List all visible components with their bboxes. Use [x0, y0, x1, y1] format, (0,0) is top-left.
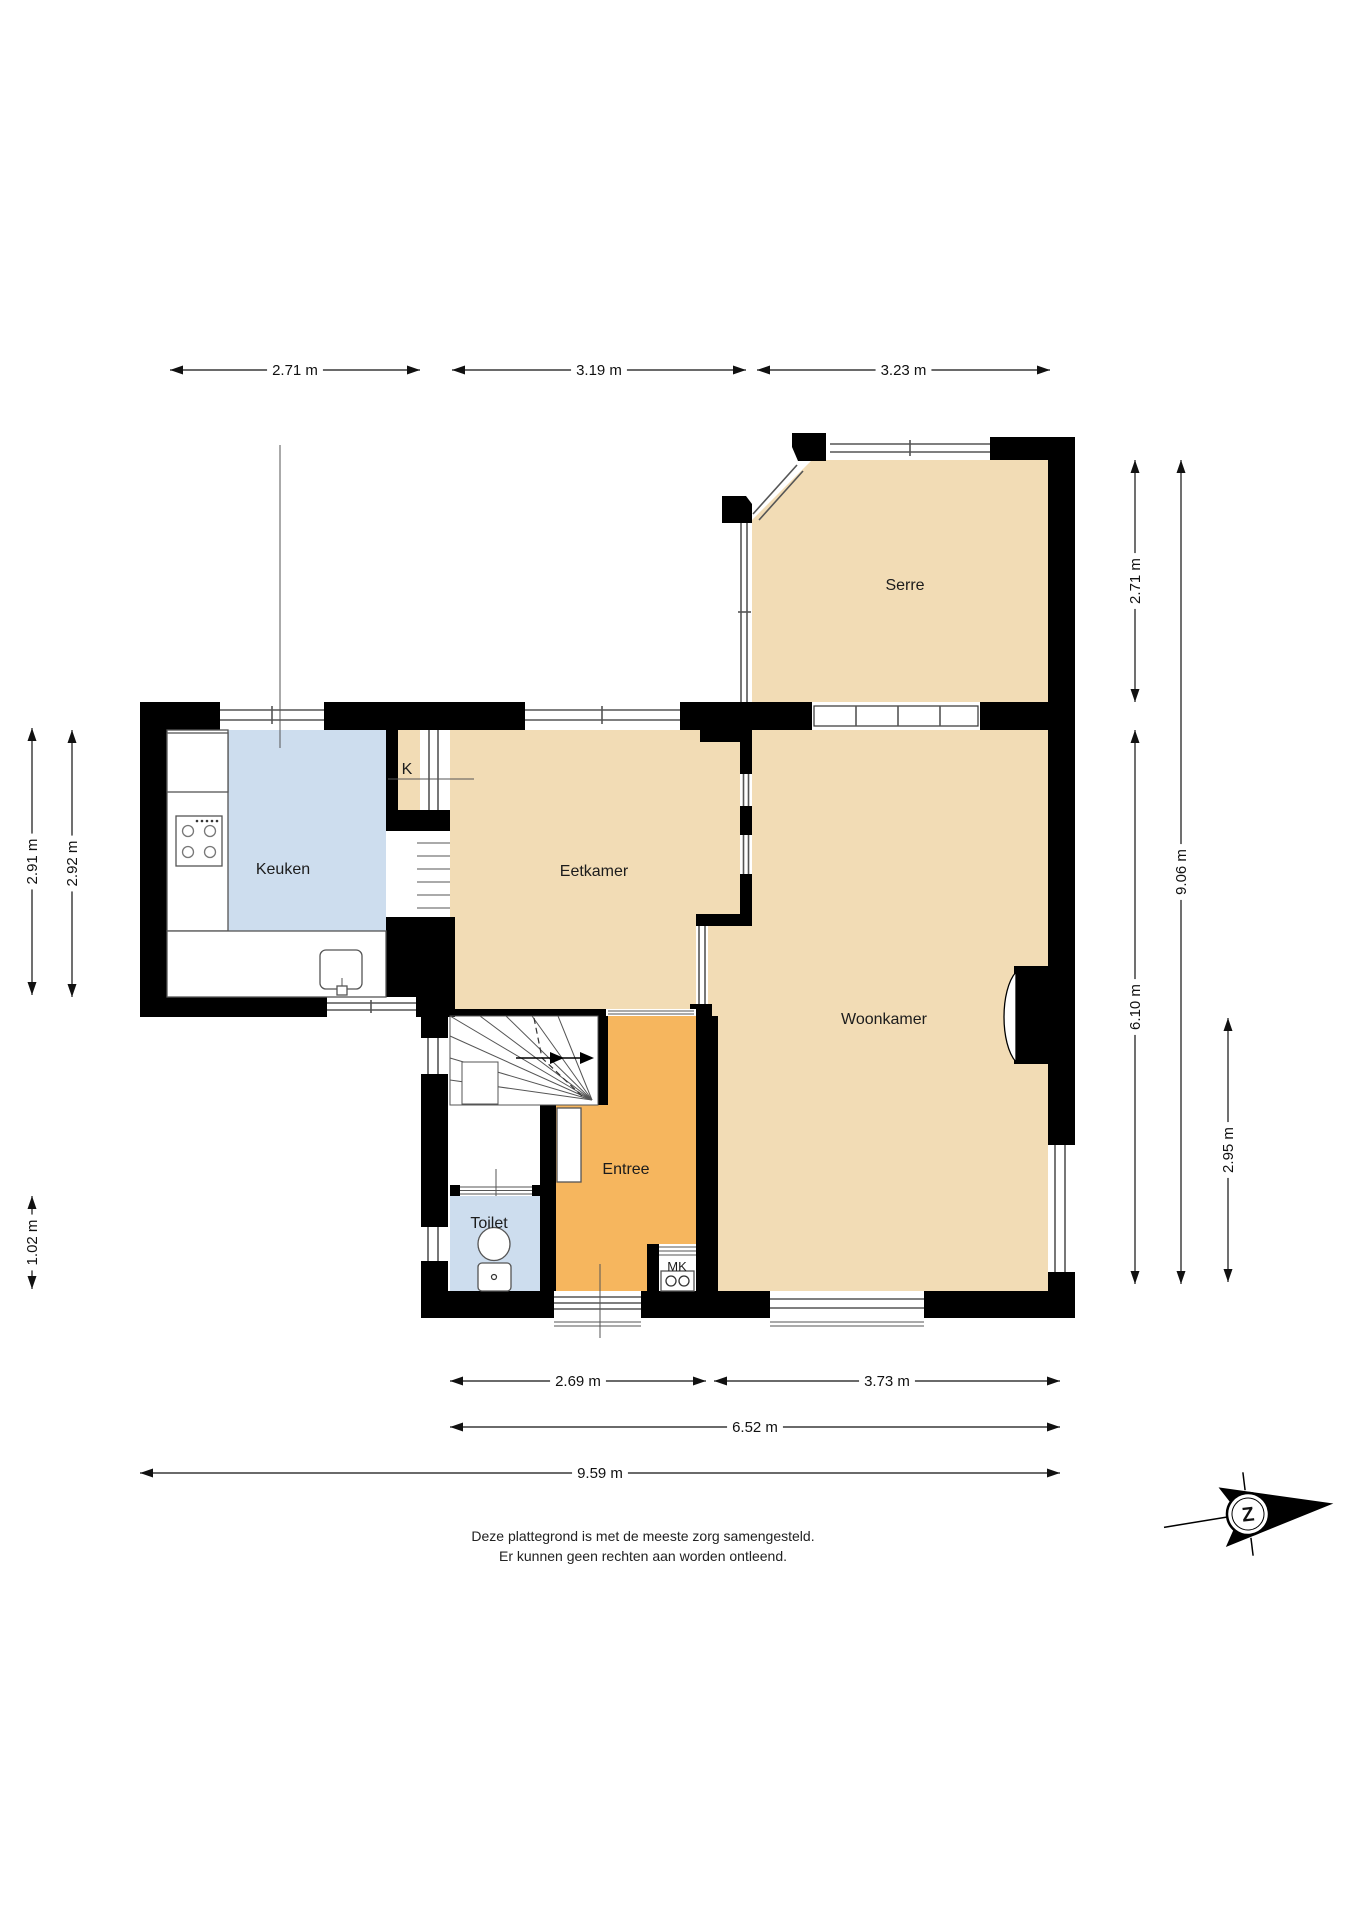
room-label-eetkamer: Eetkamer: [560, 863, 629, 880]
wall-keuken-left: [140, 702, 167, 1017]
room-label-keuken: Keuken: [256, 861, 310, 878]
wall-left-lower-a: [421, 1017, 448, 1038]
room-label-serre: Serre: [885, 577, 924, 594]
wall-bottom-c: [924, 1291, 1075, 1318]
dimension-label: 2.92 m: [64, 841, 81, 887]
window-eetkamer-top: [525, 702, 680, 730]
dimension-label: 2.95 m: [1220, 1127, 1237, 1173]
chimney-block: [1014, 966, 1048, 1064]
dimension-2.71m-10: 2.71 m: [1126, 460, 1145, 702]
compass-icon: Z: [1159, 1462, 1339, 1566]
room-label-k: K: [402, 761, 413, 778]
dimension-label: 2.69 m: [555, 1373, 601, 1390]
dimension-label: 2.71 m: [1127, 558, 1144, 604]
wall-toilet-top-b: [532, 1185, 540, 1196]
room-label-woonkamer: Woonkamer: [841, 1011, 928, 1028]
dimension-1.02m-9: 1.02 m: [23, 1196, 42, 1289]
wall-keuken-top-b: [324, 702, 455, 730]
wall-keuken-bottom-a: [140, 997, 327, 1017]
wall-serre-post-top: [792, 433, 826, 461]
door-keuken-eetkamer: [386, 831, 450, 917]
front-door: [554, 1291, 641, 1326]
dimension-label: 3.19 m: [576, 362, 622, 379]
window-eet-woon-1: [740, 774, 752, 806]
floorplan-canvas: Serre Keuken K Eetkamer Woonkamer Entree…: [0, 0, 1358, 1920]
wall-stairs-right: [598, 1016, 608, 1105]
room-label-toilet: Toilet: [470, 1215, 508, 1232]
dimension-9.06m-12: 9.06 m: [1172, 460, 1191, 1284]
wall-mid-b: [680, 702, 812, 730]
dimension-label: 6.10 m: [1127, 984, 1144, 1030]
wall-left-lower-b: [421, 1074, 448, 1227]
disclaimer-line2: Er kunnen geen rechten aan worden ontlee…: [499, 1548, 787, 1564]
wall-mid-a: [455, 702, 525, 730]
dimension-2.91m-7: 2.91 m: [23, 728, 42, 995]
wall-toilet-top-a: [450, 1185, 460, 1196]
wall-bottom-a: [421, 1291, 554, 1318]
wall-eet-woon-b: [740, 806, 752, 835]
dimension-9.59m-6: 9.59 m: [140, 1464, 1060, 1483]
door-mk: [659, 1244, 696, 1258]
wall-mid-c: [980, 702, 1048, 730]
wall-eet-woon-c: [740, 874, 752, 914]
kitchen-cabinet: [167, 733, 228, 792]
window-serre-top: [830, 437, 990, 460]
wall-eet-woon-step: [696, 914, 752, 926]
wall-landing-entree: [540, 1105, 556, 1196]
wall-stairs-top: [450, 1009, 606, 1016]
mk-meter-icon: [661, 1271, 694, 1291]
wall-right-a: [1048, 437, 1075, 1145]
dimension-3.19m-1: 3.19 m: [452, 361, 746, 380]
landing-floor: [450, 1105, 540, 1185]
wall-serre-post-mid: [722, 496, 752, 523]
wall-right-b: [1048, 1272, 1075, 1291]
wall-serre-top-corner: [990, 437, 1075, 460]
window-k-strip: [420, 730, 450, 810]
dimension-3.23m-2: 3.23 m: [757, 361, 1050, 380]
dimension-6.10m-11: 6.10 m: [1126, 730, 1145, 1284]
window-serre-left: [737, 523, 752, 702]
keuken-floor: [228, 730, 386, 931]
wall-bottom-b: [641, 1291, 770, 1318]
wall-mk-left: [647, 1244, 659, 1291]
threshold-entree-eetkamer: [606, 1009, 696, 1016]
dimension-2.92m-8: 2.92 m: [63, 730, 82, 997]
wall-keuken-top-a: [140, 702, 220, 730]
stove-icon: [176, 816, 222, 866]
wall-k-bottom: [386, 810, 450, 831]
sink-icon: [320, 950, 362, 995]
dimension-2.71m-0: 2.71 m: [170, 361, 420, 380]
wall-entree-divider: [696, 1016, 718, 1291]
dimension-label: 3.23 m: [881, 362, 927, 379]
window-keuken-top: [220, 702, 324, 730]
window-keuken-bottom: [327, 997, 416, 1017]
wall-left-lower-c: [421, 1261, 448, 1291]
dimension-3.73m-4: 3.73 m: [714, 1372, 1060, 1391]
dimension-6.52m-5: 6.52 m: [450, 1418, 1060, 1437]
window-woonkamer-bottom: [770, 1291, 924, 1326]
window-eet-woon-2: [740, 835, 752, 874]
dimension-2.95m-13: 2.95 m: [1219, 1018, 1238, 1282]
dimension-label: 9.59 m: [577, 1465, 623, 1482]
room-label-entree: Entree: [602, 1161, 649, 1178]
dimension-label: 9.06 m: [1173, 849, 1190, 895]
disclaimer-line1: Deze plattegrond is met de meeste zorg s…: [471, 1528, 814, 1544]
slider-serre-woonkamer: [812, 702, 980, 730]
disclaimer: Deze plattegrond is met de meeste zorg s…: [471, 1528, 814, 1564]
window-right-woonkamer: [1048, 1145, 1075, 1272]
glass-door-eet-woon: [696, 926, 708, 1004]
dimension-label: 2.71 m: [272, 362, 318, 379]
dimension-label: 3.73 m: [864, 1373, 910, 1390]
dimension-2.69m-3: 2.69 m: [450, 1372, 706, 1391]
room-label-mk: MK: [667, 1259, 687, 1274]
floorplan-page: Serre Keuken K Eetkamer Woonkamer Entree…: [0, 0, 1358, 1920]
wall-toilet-right: [540, 1196, 556, 1291]
window-left-toilet: [421, 1227, 448, 1261]
dimension-label: 1.02 m: [24, 1220, 41, 1266]
entree-door-leaf: [557, 1108, 581, 1182]
dimension-label: 2.91 m: [24, 839, 41, 885]
window-left-stairs: [421, 1038, 448, 1074]
dimension-label: 6.52 m: [732, 1419, 778, 1436]
wall-eet-woon-a: [740, 730, 752, 774]
